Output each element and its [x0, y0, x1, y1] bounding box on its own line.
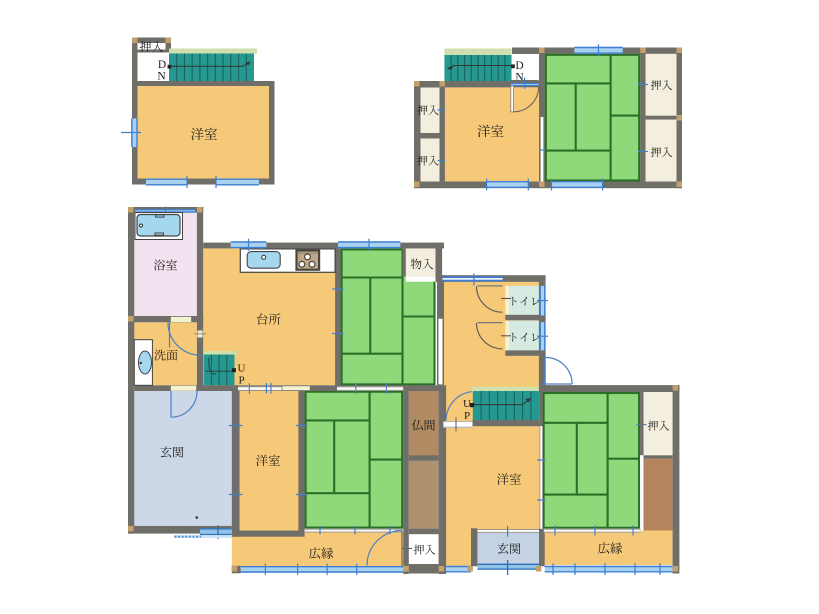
svg-text:P: P — [238, 375, 244, 387]
svg-text:D: D — [158, 59, 166, 71]
svg-text:U: U — [238, 363, 246, 375]
svg-text:D: D — [515, 60, 523, 72]
svg-text:U: U — [463, 398, 471, 410]
svg-text:N: N — [157, 71, 166, 83]
svg-text:P: P — [464, 410, 470, 422]
